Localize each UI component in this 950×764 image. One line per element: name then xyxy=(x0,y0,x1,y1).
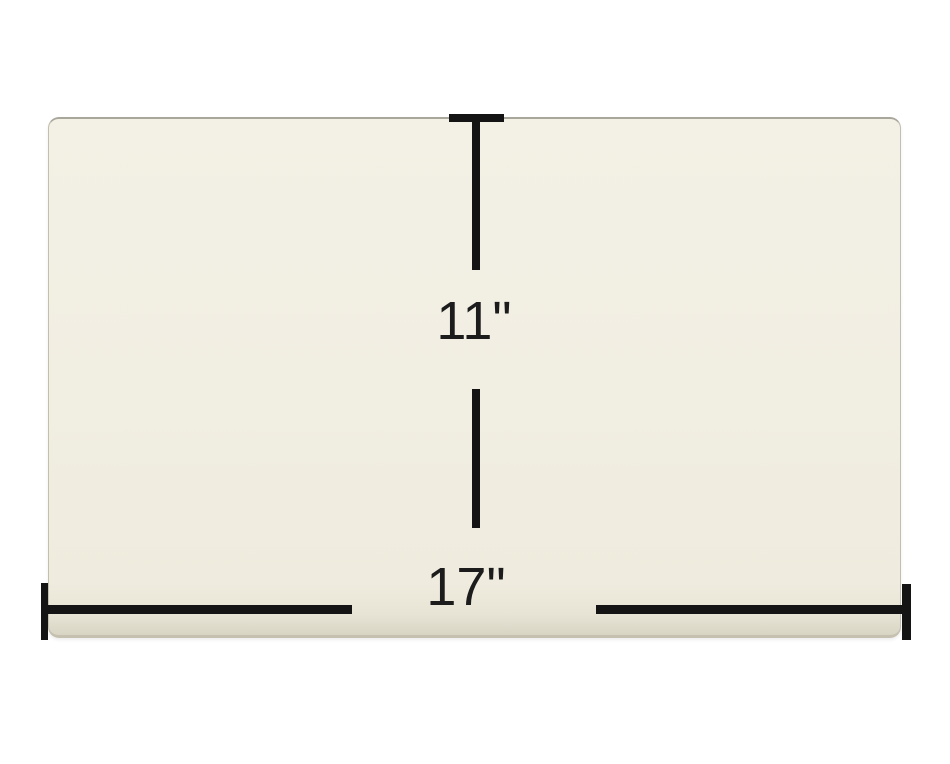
horizontal-dimension-left-cap xyxy=(41,583,48,640)
horizontal-dimension-right-cap xyxy=(902,584,911,640)
horizontal-dimension-line-right-segment xyxy=(596,605,902,614)
height-dimension-label: 11" xyxy=(414,294,534,348)
vertical-dimension-line-lower-segment xyxy=(472,389,480,528)
vertical-dimension-line-upper-segment xyxy=(472,122,480,270)
width-dimension-label: 17" xyxy=(406,560,526,614)
vertical-dimension-top-cap xyxy=(449,114,504,122)
product-dimension-diagram: 11" 17" xyxy=(0,0,950,764)
horizontal-dimension-line-left-segment xyxy=(48,605,352,614)
